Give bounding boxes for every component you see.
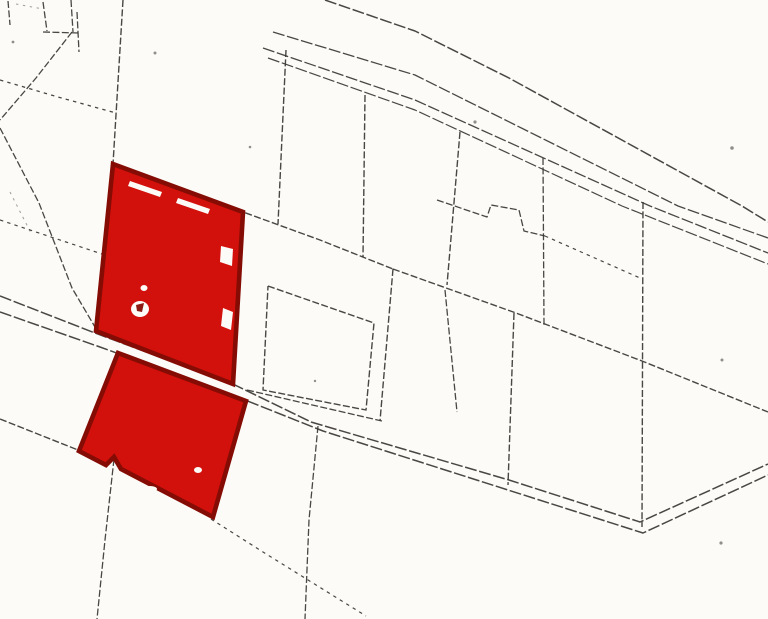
boundary-vert-453-upper <box>447 132 460 285</box>
boundary-smallparcel-vert-1 <box>8 1 10 25</box>
scan-speck <box>12 41 15 44</box>
scan-gap-blob-2 <box>141 285 148 291</box>
boundary-dash-to-parcel <box>0 220 102 254</box>
boundary-vert-284 <box>278 50 286 224</box>
boundary-main-lower-e <box>393 269 768 412</box>
boundary-vertical-to-red-corner <box>113 0 123 164</box>
boundary-central-parcel <box>263 286 374 410</box>
boundary-bottomleft <box>0 419 78 450</box>
boundary-smallparcel-horiz <box>43 32 79 33</box>
upper-road-line-4 <box>268 58 768 264</box>
upper-road-line-3 <box>263 48 768 253</box>
boundary-notch-dash-east <box>545 236 640 278</box>
upper-road-line-1 <box>325 0 768 222</box>
boundary-upperleft-diagonal <box>0 80 116 113</box>
boundary-vert-510 <box>508 313 514 485</box>
scan-speck <box>719 541 722 544</box>
scan-gap-lower-2 <box>194 467 202 473</box>
scan-speck <box>249 146 252 149</box>
boundary-vert-364 <box>363 95 365 257</box>
upper-road-line-2 <box>273 32 768 238</box>
boundary-left-echo <box>10 192 32 235</box>
scan-speck <box>154 52 157 55</box>
boundary-smallparcel-vert-2 <box>43 2 47 31</box>
boundary-bottom-dash-cont <box>211 519 366 616</box>
boundary-vert-453-lower <box>445 290 457 412</box>
boundary-bottom-vert-from-notch <box>97 459 114 619</box>
boundary-vert-643 <box>642 202 643 527</box>
scan-gap-right-2 <box>221 308 233 330</box>
scanned-cadastral-map-page <box>0 0 768 619</box>
boundary-smallparcel-top-dash <box>16 4 43 9</box>
boundary-smallparcel-vert-3 <box>71 0 73 32</box>
cadastral-map-canvas <box>0 0 768 619</box>
boundary-vert-390 <box>380 269 393 421</box>
boundary-upperleft-steep <box>0 32 72 120</box>
scan-speck <box>730 146 734 150</box>
scan-speck <box>473 120 476 123</box>
boundary-left-long <box>0 128 95 327</box>
boundary-vert-545 <box>543 158 544 325</box>
boundary-above-road <box>247 390 382 421</box>
scan-speck <box>721 359 724 362</box>
scan-speck <box>314 380 316 382</box>
boundary-smallparcel-vert-4 <box>77 12 79 52</box>
scan-gap-lower-1 <box>143 486 157 492</box>
boundary-bottom-vert-center <box>305 426 318 619</box>
